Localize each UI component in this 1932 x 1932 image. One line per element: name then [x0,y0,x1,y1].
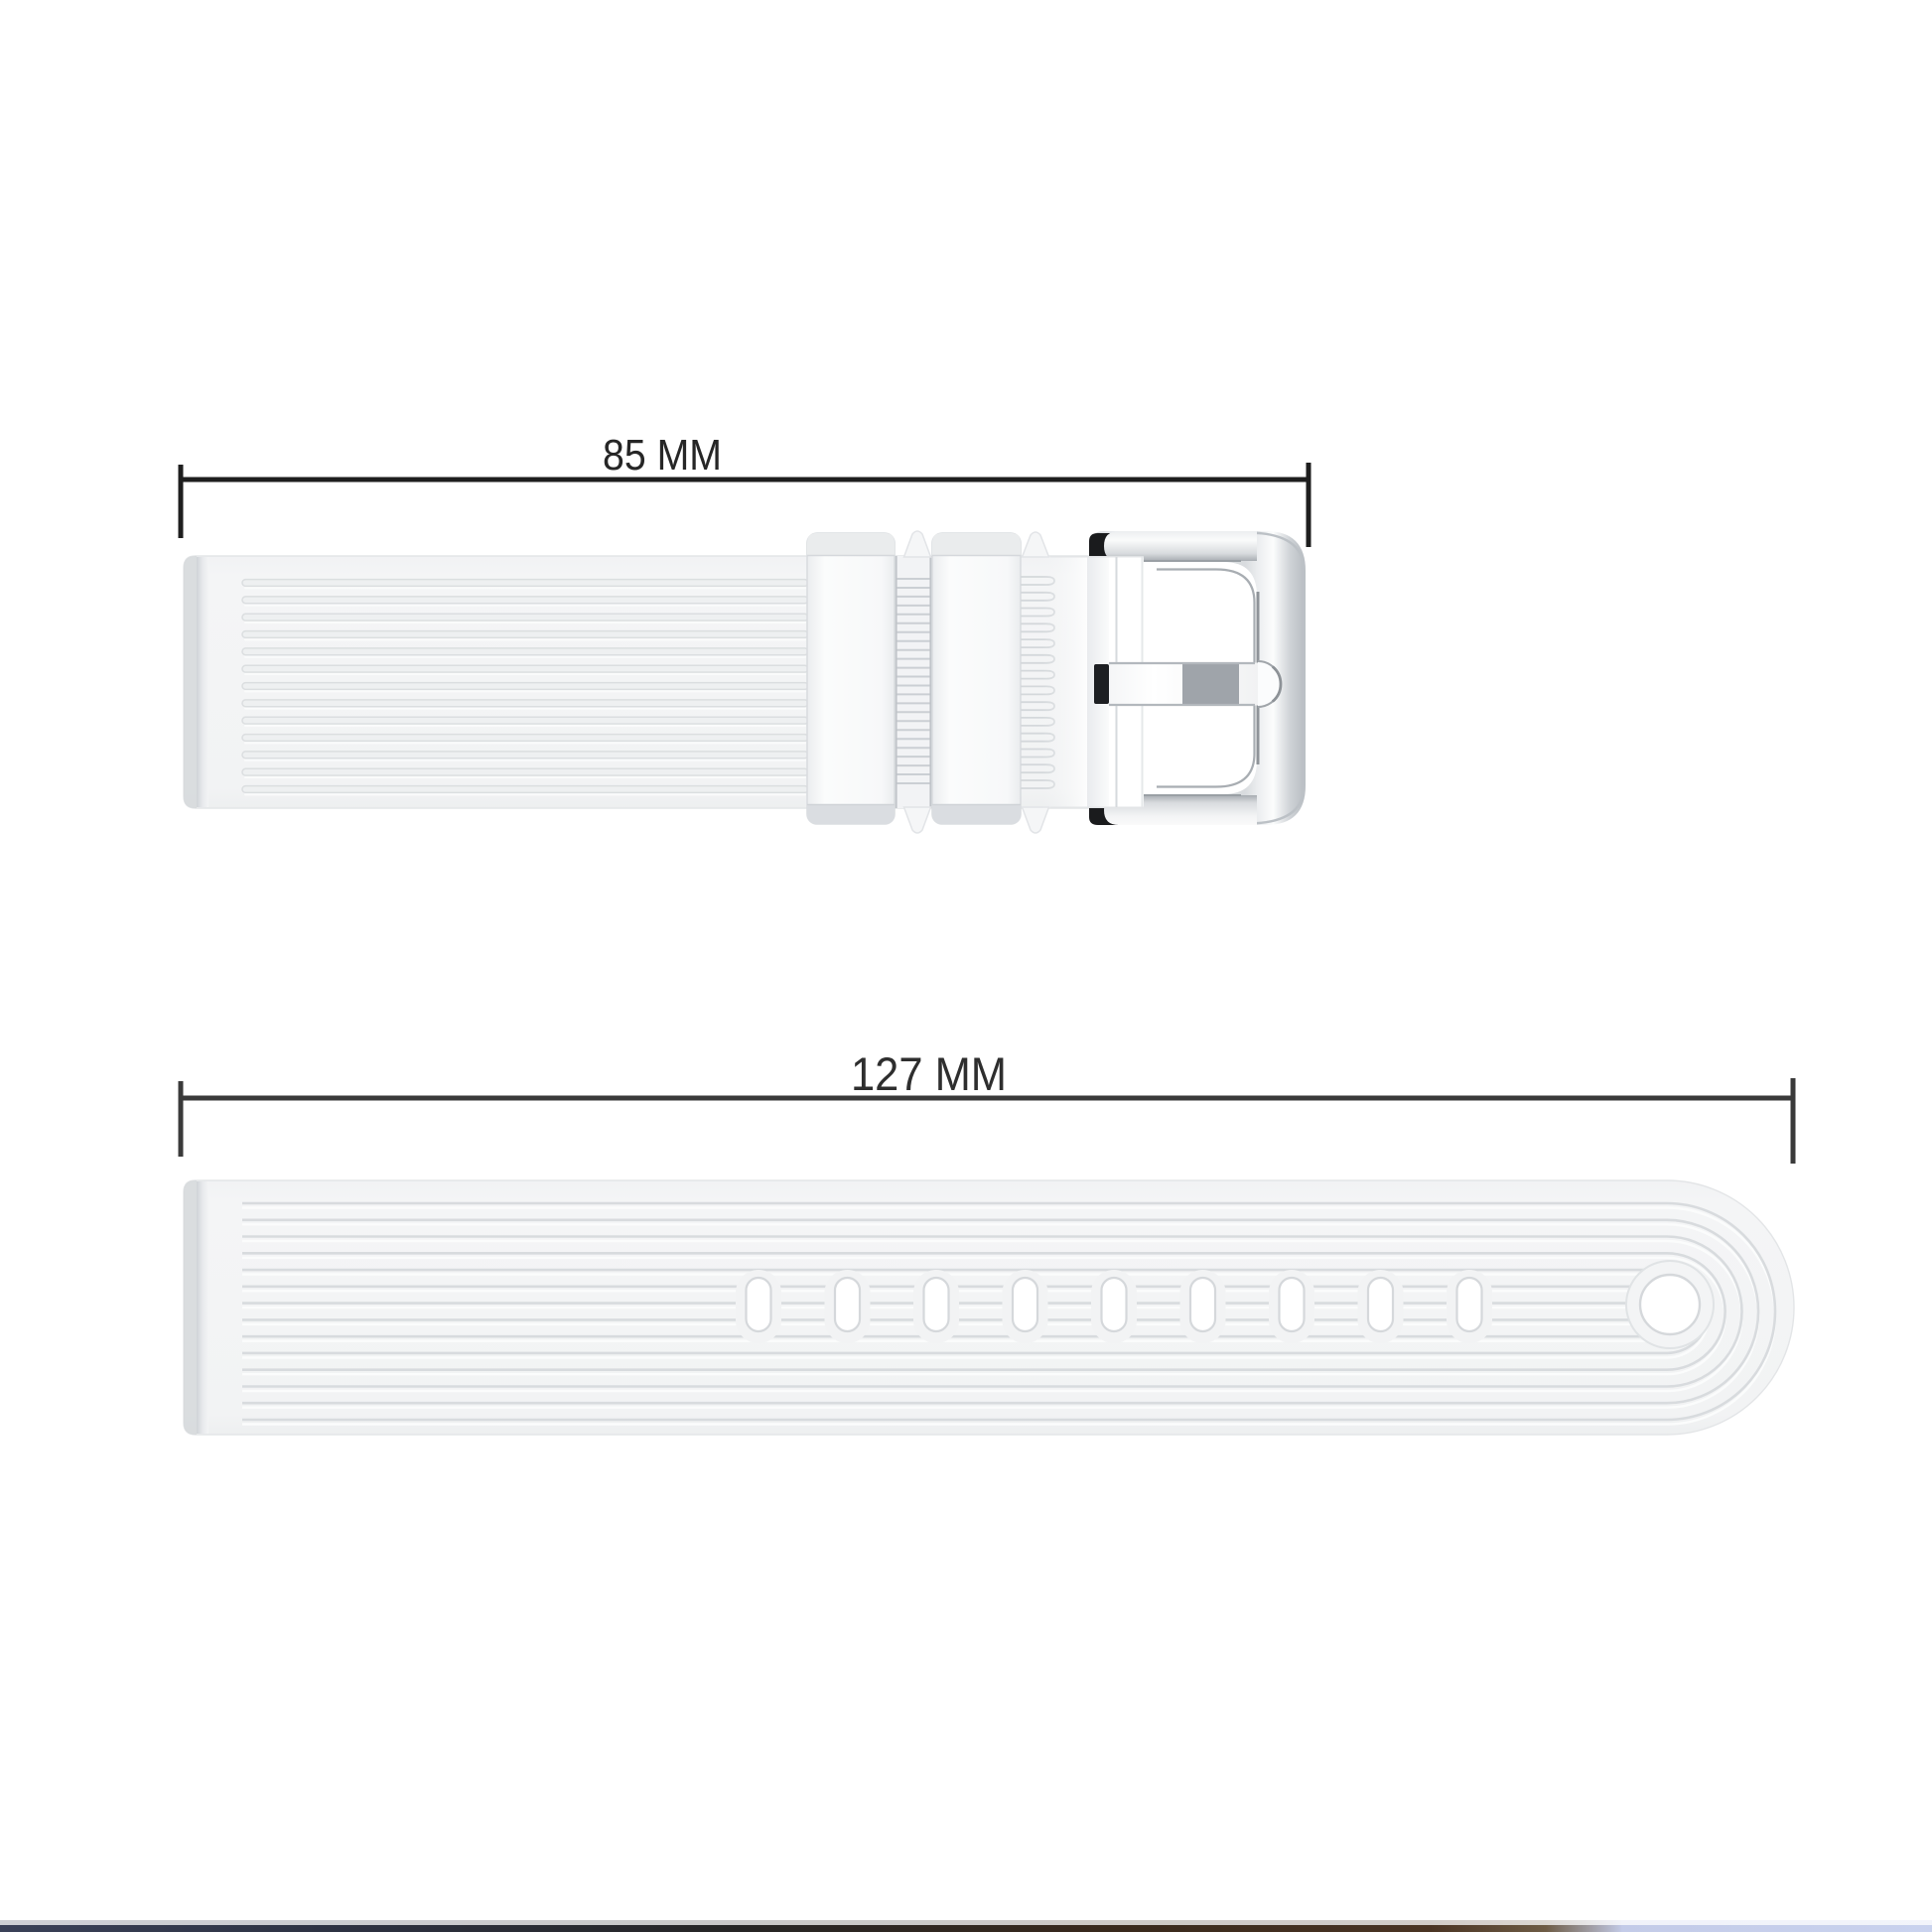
svg-text:85 MM: 85 MM [603,431,722,480]
svg-text:127 MM: 127 MM [851,1047,1007,1100]
